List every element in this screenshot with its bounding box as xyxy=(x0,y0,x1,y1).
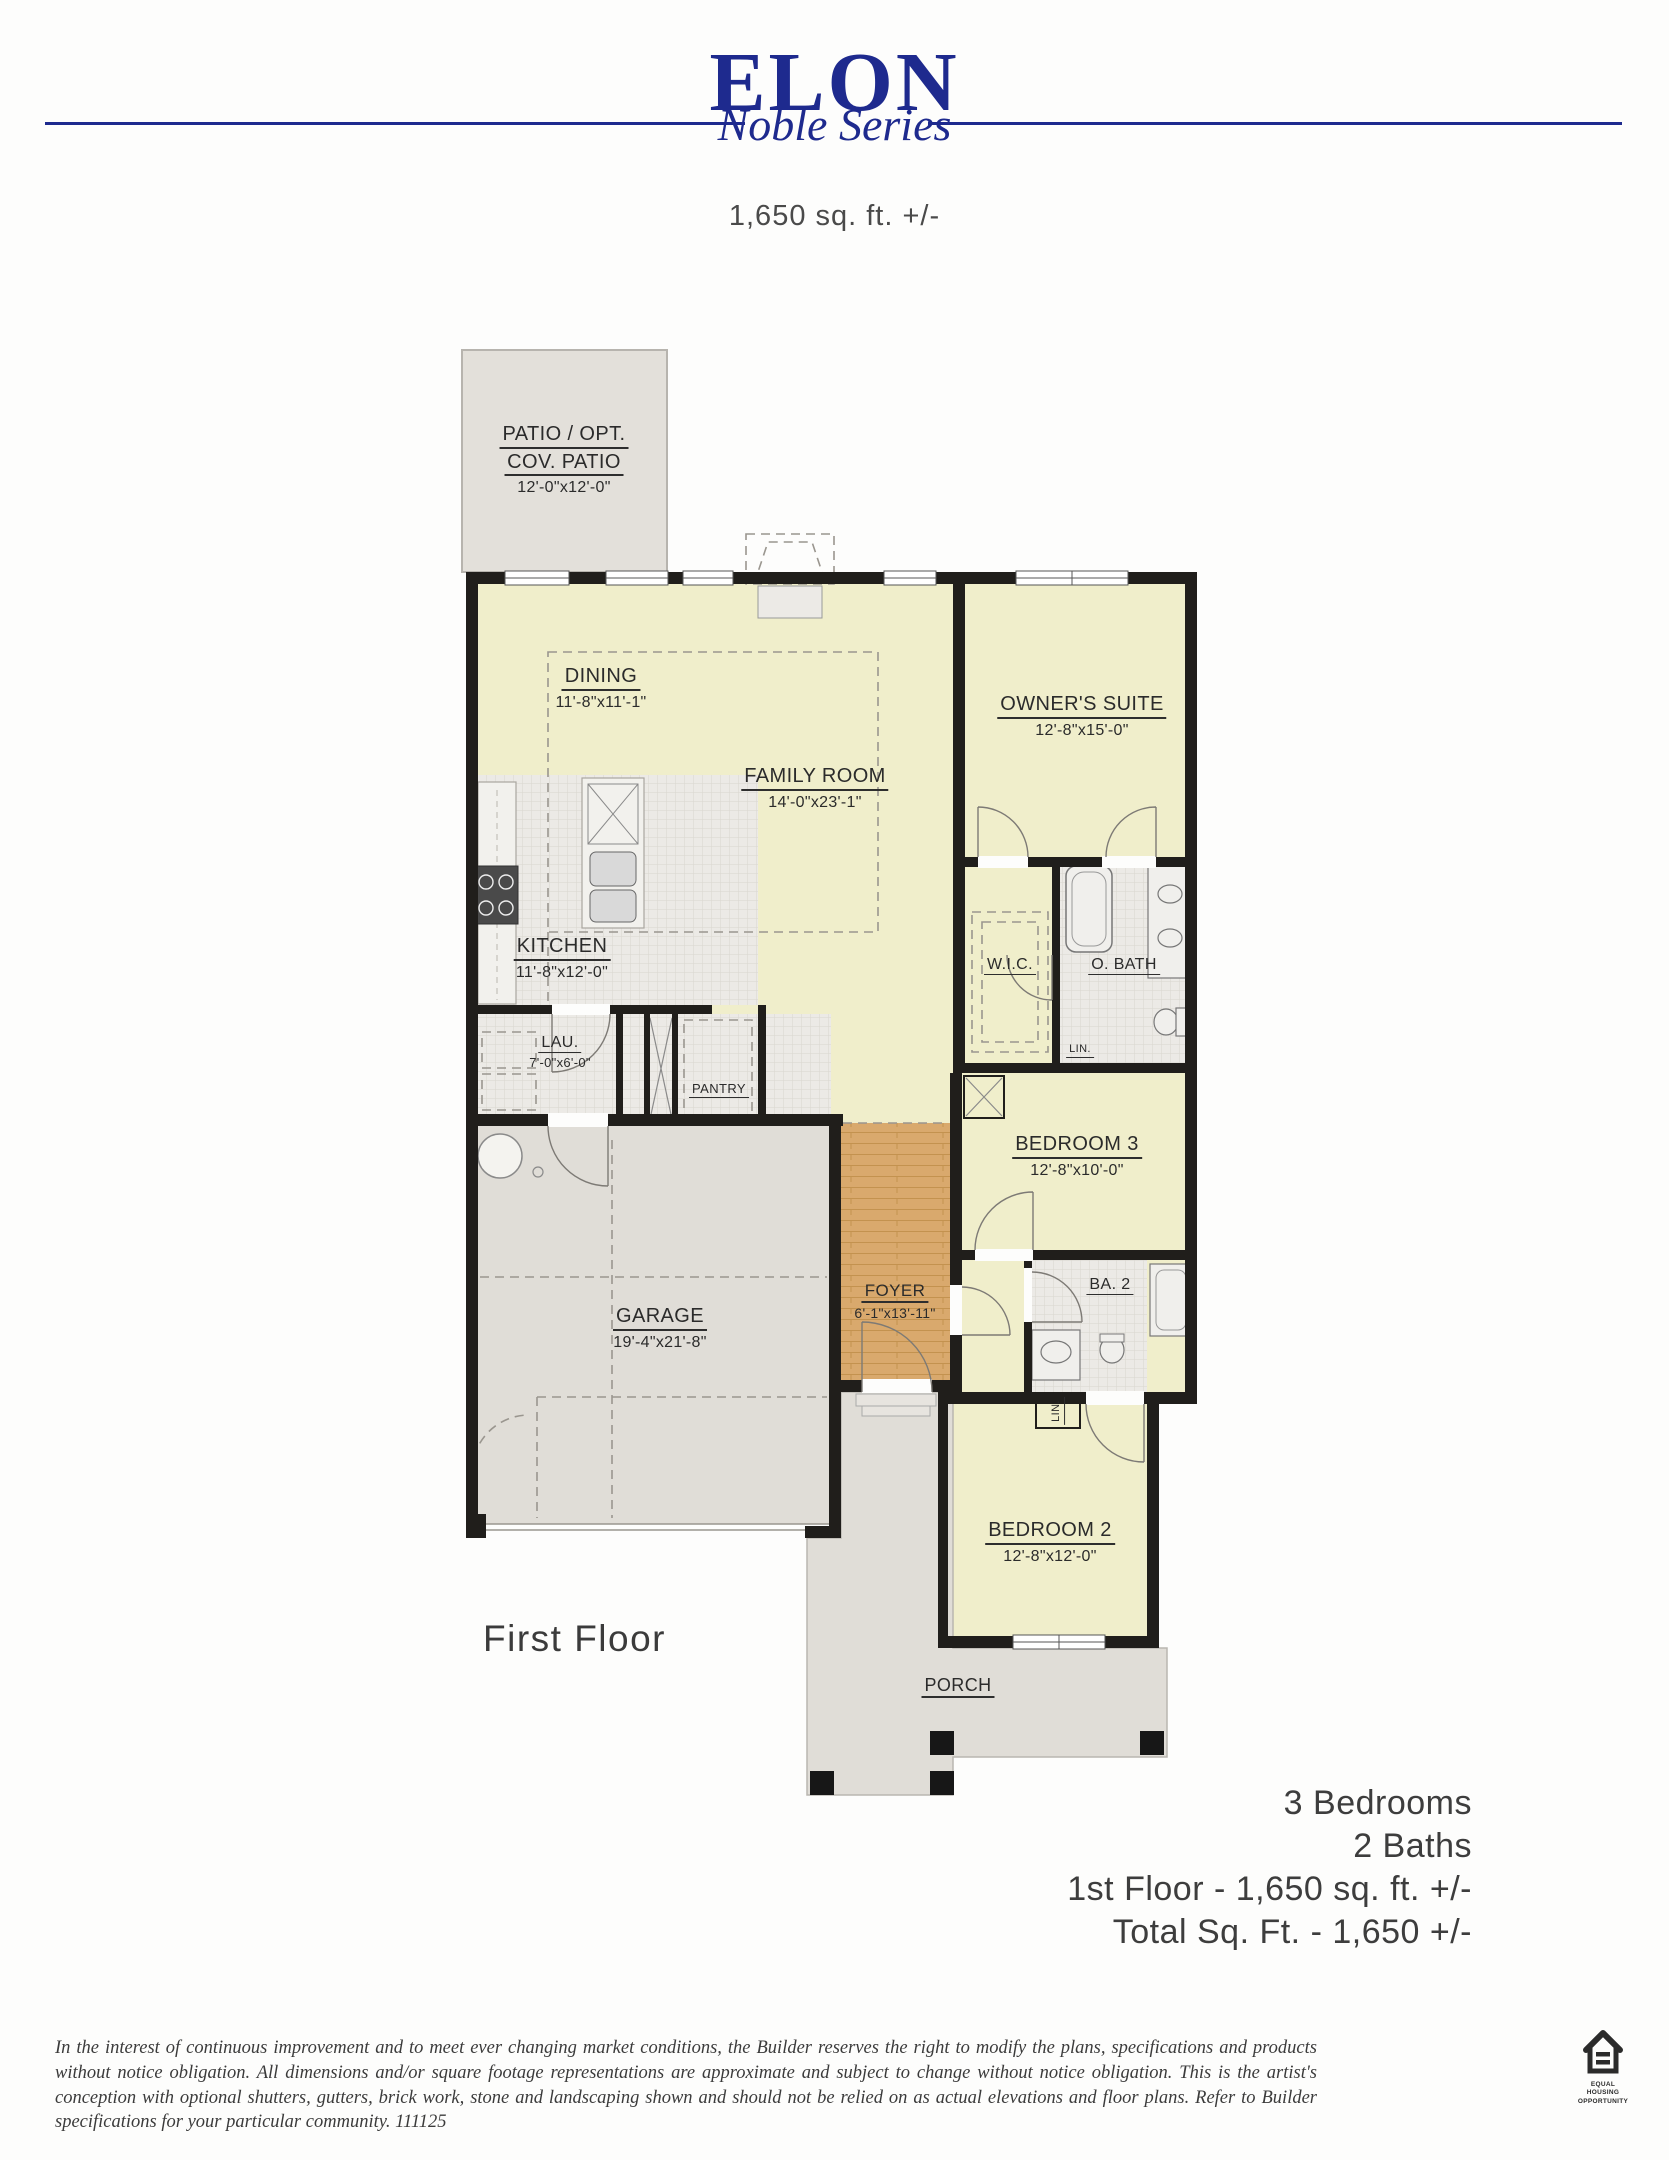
room-label-patio: PATIO / OPT. COV. PATIO 12'-0"x12'-0" xyxy=(500,424,629,496)
eho-text-line2: OPPORTUNITY xyxy=(1574,2098,1632,2106)
room-dims: 19'-4"x21'-8" xyxy=(613,1334,706,1351)
room-label-family: FAMILY ROOM 14'-0"x23'-1" xyxy=(741,766,888,811)
room-name: LAU. xyxy=(538,1034,581,1053)
bath2-vanity xyxy=(1032,1330,1080,1380)
summary-bedrooms: 3 Bedrooms xyxy=(1067,1782,1472,1825)
summary-first-floor: 1st Floor - 1,650 sq. ft. +/- xyxy=(1067,1868,1472,1911)
room-label-pantry: PANTRY xyxy=(689,1082,749,1098)
room-dims: 12'-8"x10'-0" xyxy=(1030,1162,1123,1179)
equal-housing-logo: EQUAL HOUSING OPPORTUNITY xyxy=(1574,2028,1632,2106)
room-name: PATIO / OPT. xyxy=(500,424,629,449)
room-dims: 14'-0"x23'-1" xyxy=(768,794,861,811)
room-dims: 11'-8"x12'-0" xyxy=(516,964,608,981)
room-name: BEDROOM 3 xyxy=(1012,1134,1142,1159)
room-label-laundry: LAU. 7'-0"x6'-0" xyxy=(529,1034,591,1070)
room-name: DINING xyxy=(562,666,640,691)
room-dims: 12'-8"x15'-0" xyxy=(1035,722,1128,739)
room-name: LIN. xyxy=(1051,1397,1065,1425)
summary-total: Total Sq. Ft. - 1,650 +/- xyxy=(1067,1911,1472,1954)
room-label-bath2: BA. 2 xyxy=(1086,1276,1133,1295)
room-name: BA. 2 xyxy=(1086,1276,1133,1295)
room-dims: 11'-8"x11'-1" xyxy=(555,694,646,711)
room-label-obath: O. BATH xyxy=(1088,956,1160,975)
water-heater xyxy=(478,1134,522,1178)
summary-baths: 2 Baths xyxy=(1067,1825,1472,1868)
front-stoop xyxy=(856,1394,936,1406)
room-dims: 12'-8"x12'-0" xyxy=(1003,1548,1096,1565)
equal-housing-house-icon xyxy=(1579,2028,1627,2076)
garage-door xyxy=(478,1524,829,1530)
room-label-garage: GARAGE 19'-4"x21'-8" xyxy=(613,1306,707,1351)
island-sink xyxy=(590,852,636,886)
room-name: W.I.C. xyxy=(984,956,1036,975)
room-name: KITCHEN xyxy=(514,936,611,961)
room-label-linen1: LIN. xyxy=(1066,1044,1094,1058)
room-name: FAMILY ROOM xyxy=(741,766,888,791)
stove xyxy=(474,866,518,924)
room-label-dining: DINING 11'-8"x11'-1" xyxy=(555,666,646,711)
eho-text-line1: EQUAL HOUSING xyxy=(1574,2081,1632,2098)
fireplace xyxy=(758,586,822,618)
floor-label: First Floor xyxy=(483,1618,666,1660)
room-name: COV. PATIO xyxy=(504,452,624,477)
room-label-owners-suite: OWNER'S SUITE 12'-8"x15'-0" xyxy=(997,694,1166,739)
room-name: PANTRY xyxy=(689,1082,749,1098)
room-label-kitchen: KITCHEN 11'-8"x12'-0" xyxy=(514,936,611,981)
flyer-page: ELON Noble Series 1,650 sq. ft. +/- xyxy=(0,0,1669,2160)
room-name: LIN. xyxy=(1066,1044,1094,1058)
owner-toilet xyxy=(1154,1009,1178,1035)
room-name: GARAGE xyxy=(613,1306,707,1331)
room-name: OWNER'S SUITE xyxy=(997,694,1166,719)
room-name: PORCH xyxy=(921,1676,994,1698)
room-label-bedroom3: BEDROOM 3 12'-8"x10'-0" xyxy=(1012,1134,1142,1179)
room-label-foyer: FOYER 6'-1"x13'-11" xyxy=(854,1282,935,1321)
room-label-linen2: LIN. xyxy=(1051,1397,1065,1425)
disclaimer-text: In the interest of continuous improvemen… xyxy=(55,2036,1317,2135)
room-label-porch: PORCH xyxy=(921,1676,994,1698)
room-label-bedroom2: BEDROOM 2 12'-8"x12'-0" xyxy=(985,1520,1115,1565)
room-dims: 6'-1"x13'-11" xyxy=(854,1306,935,1321)
room-dims: 12'-0"x12'-0" xyxy=(517,479,610,496)
room-name: BEDROOM 2 xyxy=(985,1520,1115,1545)
plan-summary: 3 Bedrooms 2 Baths 1st Floor - 1,650 sq.… xyxy=(1067,1782,1472,1954)
room-dims: 7'-0"x6'-0" xyxy=(529,1056,591,1070)
room-name: O. BATH xyxy=(1088,956,1160,975)
room-label-wic: W.I.C. xyxy=(984,956,1036,975)
room-name: FOYER xyxy=(862,1282,929,1303)
